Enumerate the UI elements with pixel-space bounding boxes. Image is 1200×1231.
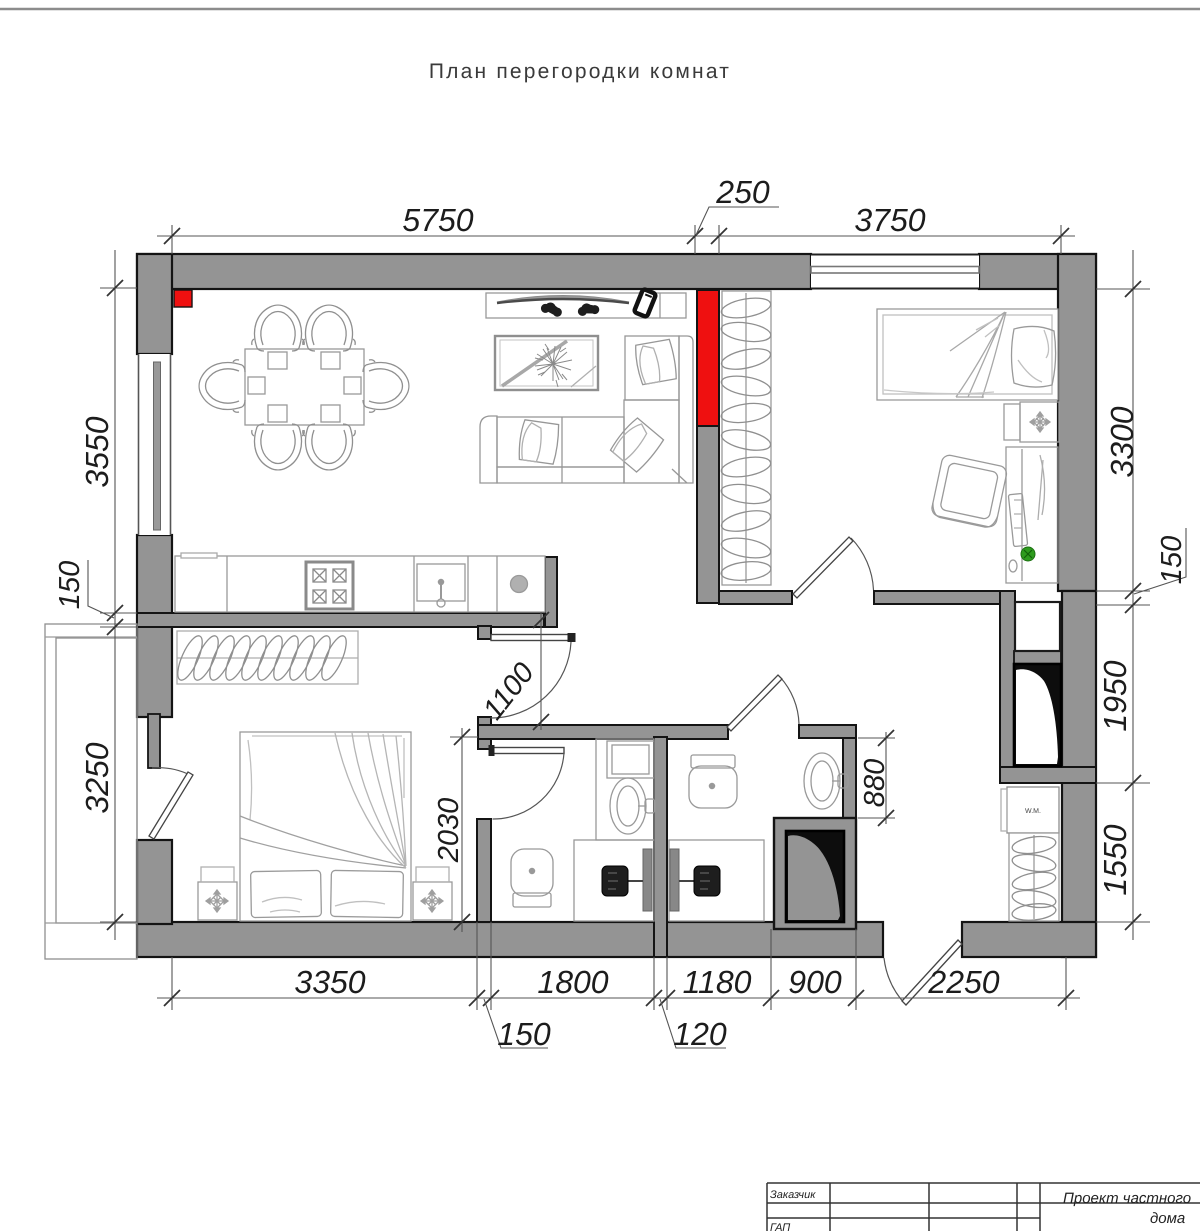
svg-text:ГАП: ГАП — [770, 1222, 790, 1231]
svg-text:1950: 1950 — [1097, 660, 1133, 731]
svg-text:900: 900 — [788, 964, 842, 1000]
svg-text:Заказчик: Заказчик — [770, 1189, 816, 1201]
svg-text:3250: 3250 — [79, 742, 115, 813]
svg-text:120: 120 — [673, 1016, 727, 1052]
svg-text:5750: 5750 — [402, 202, 473, 238]
svg-text:150: 150 — [1156, 536, 1188, 584]
svg-text:1550: 1550 — [1097, 824, 1133, 895]
svg-text:3350: 3350 — [294, 964, 365, 1000]
svg-text:1180: 1180 — [683, 964, 752, 1000]
svg-text:3550: 3550 — [79, 416, 115, 487]
svg-text:150: 150 — [54, 561, 86, 609]
svg-text:3300: 3300 — [1104, 406, 1140, 477]
svg-text:250: 250 — [715, 174, 770, 210]
svg-text:150: 150 — [497, 1016, 551, 1052]
svg-text:880: 880 — [859, 759, 891, 807]
svg-text:дома: дома — [1150, 1210, 1185, 1227]
svg-text:Проект частного: Проект частного — [1063, 1190, 1191, 1207]
svg-text:2030: 2030 — [433, 798, 465, 864]
svg-text:W.M.: W.M. — [1025, 808, 1041, 815]
svg-text:1800: 1800 — [537, 964, 608, 1000]
svg-text:План перегородки комнат: План перегородки комнат — [429, 60, 731, 83]
svg-text:2250: 2250 — [927, 964, 999, 1000]
svg-text:1100: 1100 — [477, 657, 541, 726]
svg-text:3750: 3750 — [854, 202, 925, 238]
